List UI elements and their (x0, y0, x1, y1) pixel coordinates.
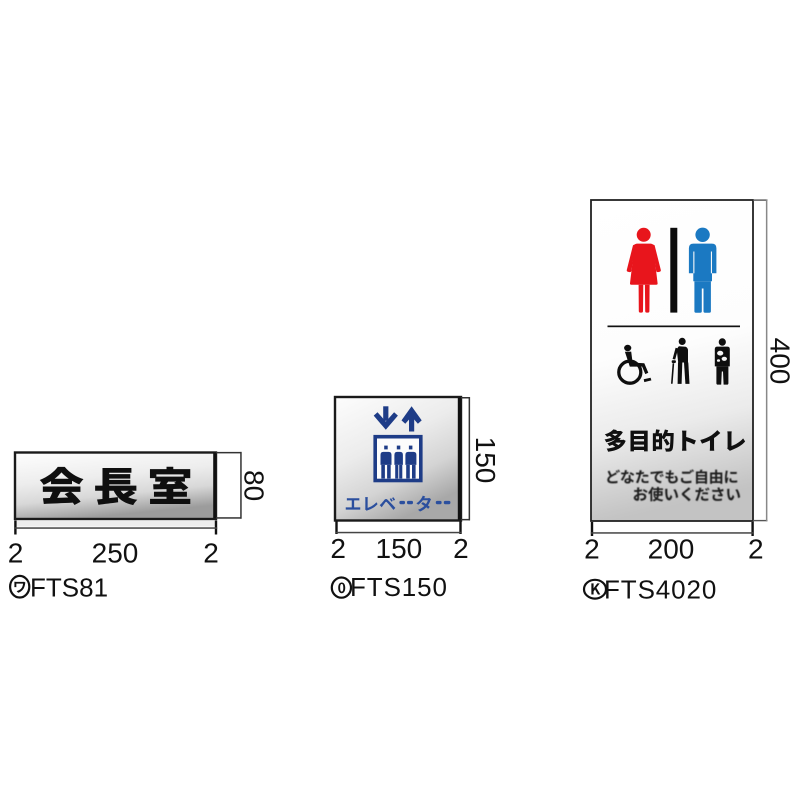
svg-text:2: 2 (330, 533, 346, 564)
svg-text:150: 150 (376, 533, 423, 564)
svg-text:250: 250 (92, 538, 139, 569)
svg-text:400: 400 (765, 338, 796, 385)
svg-text:2: 2 (584, 533, 600, 564)
svg-text:FTS150: FTS150 (350, 572, 448, 602)
svg-text:FTS81: FTS81 (30, 573, 108, 603)
svg-text:FTS4020: FTS4020 (604, 575, 717, 605)
svg-text:150: 150 (470, 437, 501, 484)
svg-text:2: 2 (453, 533, 469, 564)
svg-text:200: 200 (648, 533, 695, 564)
svg-text:80: 80 (239, 470, 270, 501)
svg-text:2: 2 (203, 538, 219, 569)
svg-text:2: 2 (748, 533, 764, 564)
svg-text:2: 2 (8, 538, 24, 569)
